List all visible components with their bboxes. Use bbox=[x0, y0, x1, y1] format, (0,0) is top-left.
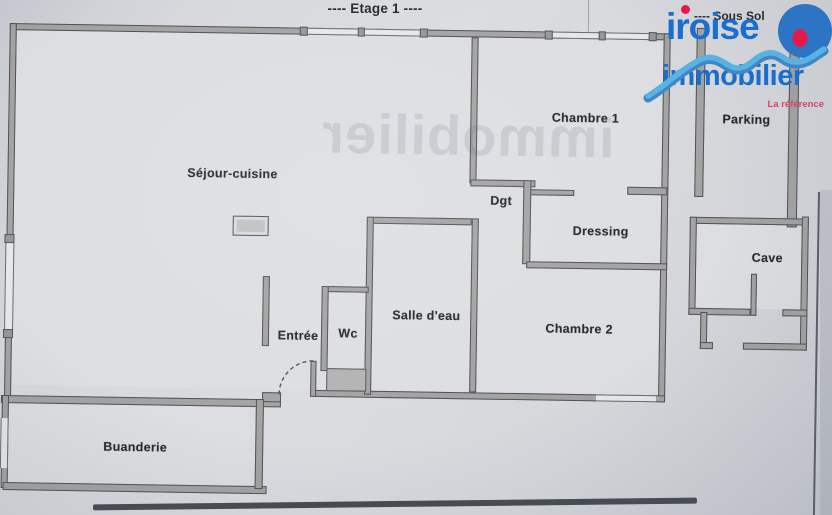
wall bbox=[700, 342, 713, 349]
room-label-dgt: Dgt bbox=[490, 194, 512, 208]
wall bbox=[262, 392, 281, 402]
logo-wave-and-disc-icon bbox=[634, 0, 832, 120]
window-cap bbox=[300, 27, 308, 36]
cave-floor-fill bbox=[695, 224, 801, 310]
duct-box bbox=[326, 368, 366, 392]
room-label-chambre2: Chambre 2 bbox=[545, 322, 613, 337]
cave-door-post bbox=[750, 274, 757, 316]
room-label-buanderie: Buanderie bbox=[103, 440, 167, 455]
wall bbox=[255, 399, 264, 489]
floor-plan-drawing: Séjour-cuisine Chambre 1 Dgt Dressing Sa… bbox=[0, 14, 696, 515]
page-edge-right bbox=[813, 192, 820, 515]
window-marker bbox=[0, 418, 9, 468]
kitchen-island-box bbox=[233, 216, 269, 237]
wall bbox=[324, 286, 369, 293]
wall bbox=[688, 308, 750, 316]
window-marker bbox=[4, 242, 14, 330]
window-cap bbox=[3, 329, 13, 338]
main-floor-fill bbox=[11, 30, 663, 395]
floor-title: ---- Etage 1 ---- bbox=[300, 1, 450, 16]
wall bbox=[743, 343, 807, 351]
wall bbox=[782, 309, 807, 316]
window-cap bbox=[545, 30, 553, 39]
iroise-immobilier-logo: iroise immobilier La référence bbox=[634, 0, 832, 120]
room-label-cave: Cave bbox=[752, 251, 783, 265]
room-label-dressing: Dressing bbox=[573, 224, 629, 239]
room-label-salle-eau: Salle d'eau bbox=[392, 308, 460, 323]
room-label-entree: Entrée bbox=[278, 328, 319, 343]
wall bbox=[320, 286, 328, 371]
room-label-wc: Wc bbox=[338, 326, 358, 340]
entrance-door-post bbox=[310, 361, 317, 397]
room-label-sejour: Séjour-cuisine bbox=[187, 166, 278, 181]
window-marker bbox=[596, 394, 656, 402]
scanned-floor-plan-page: ---- Etage 1 ---- immobilier bbox=[0, 0, 832, 515]
room-label-chambre1: Chambre 1 bbox=[552, 111, 620, 126]
window-cap bbox=[358, 28, 365, 37]
page-edge-shade bbox=[820, 190, 832, 515]
wall bbox=[800, 217, 809, 351]
wall bbox=[627, 187, 667, 196]
wall bbox=[262, 276, 270, 346]
window-cap bbox=[4, 234, 14, 243]
window-cap bbox=[599, 31, 606, 40]
window-cap bbox=[420, 29, 428, 38]
wall bbox=[530, 189, 574, 196]
